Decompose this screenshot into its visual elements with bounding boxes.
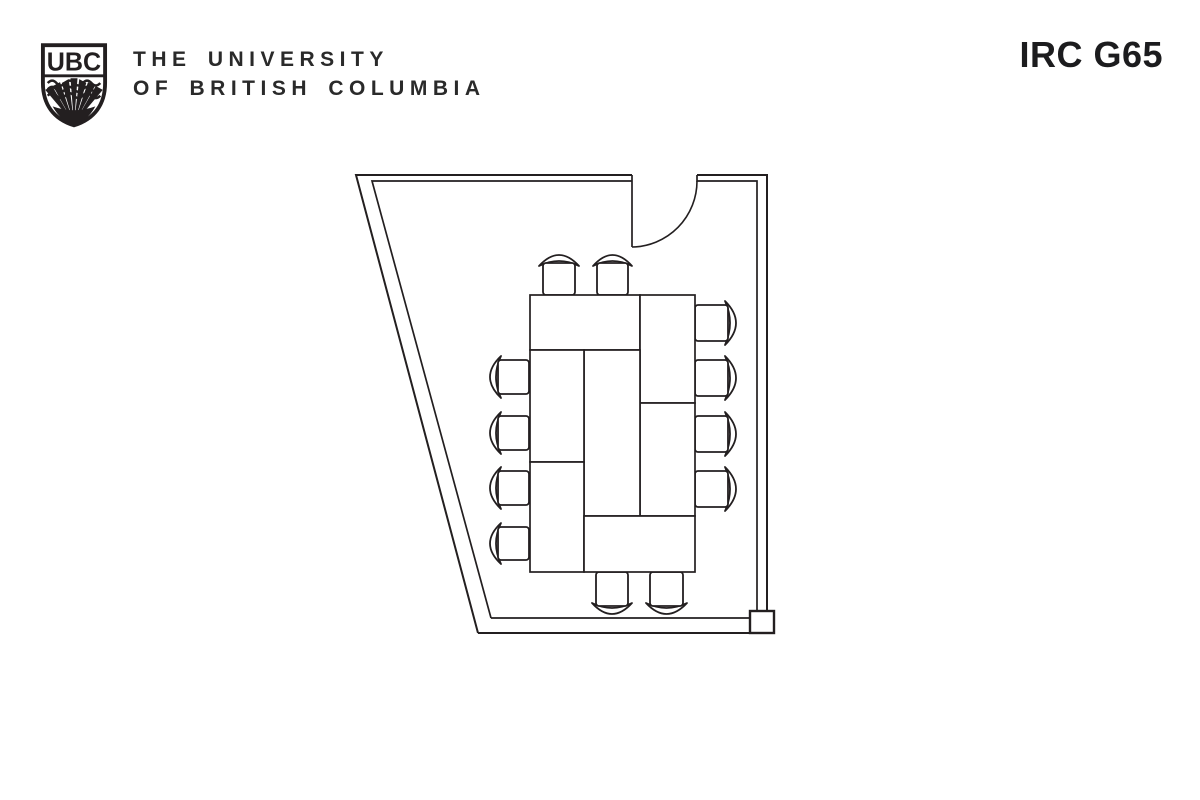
ubc-brand: UBC THE UNIVERSITY OF BRITISH COLUMBIA	[40, 42, 485, 128]
chair-seat	[498, 416, 529, 450]
chair-seat	[597, 263, 628, 295]
chair-seat	[498, 527, 529, 560]
floor-plan-drawing	[340, 160, 800, 650]
table-segment	[584, 350, 640, 516]
chair-seat	[650, 572, 683, 606]
ubc-logo-icon: UBC	[40, 42, 108, 128]
institution-name-line1: THE UNIVERSITY	[133, 45, 485, 74]
table-segment	[530, 462, 584, 572]
chair-seat	[695, 360, 728, 396]
table-segment	[640, 403, 695, 516]
table-segment	[530, 295, 640, 350]
institution-name-line2: OF BRITISH COLUMBIA	[133, 74, 485, 103]
chair-seat	[695, 305, 728, 341]
table-segment	[640, 295, 695, 403]
chair-seat	[543, 263, 575, 295]
chair-seat	[695, 416, 728, 452]
table-segment	[530, 350, 584, 462]
institution-name: THE UNIVERSITY OF BRITISH COLUMBIA	[133, 45, 485, 103]
door-swing-arc	[632, 181, 697, 247]
floor-plan	[340, 160, 800, 650]
table-segment	[584, 516, 695, 572]
chair-seat	[498, 360, 529, 394]
wall-end-cap	[750, 611, 774, 633]
room-label: IRC G65	[1019, 34, 1163, 76]
crest-ubc-text: UBC	[47, 46, 101, 76]
chair-seat	[596, 572, 628, 606]
chair-seat	[498, 471, 529, 505]
chair-seat	[695, 471, 728, 507]
